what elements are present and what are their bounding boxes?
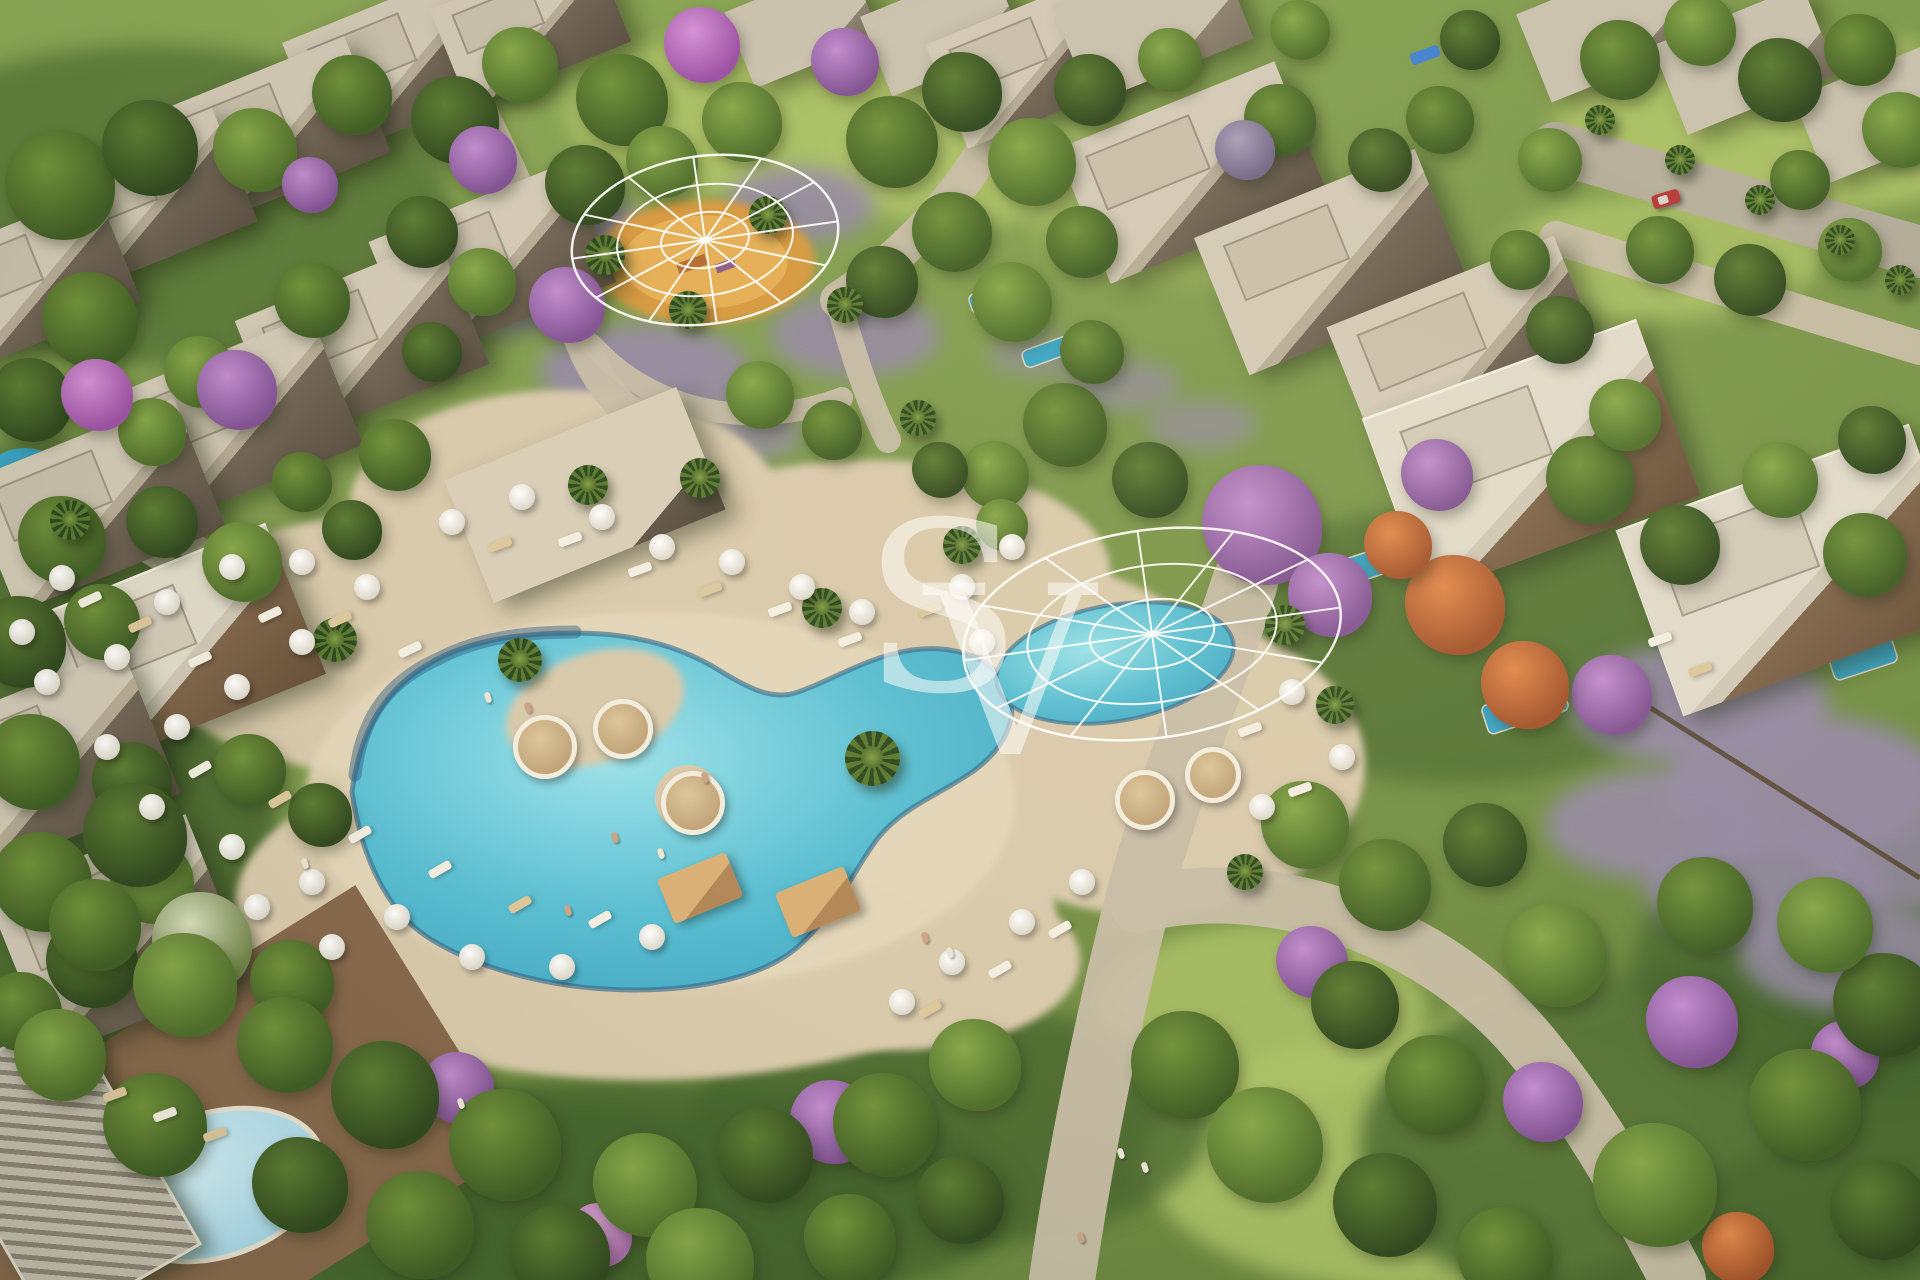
watermark-letter-v: V [925, 556, 1095, 791]
watermark: S V [0, 0, 1920, 1280]
aerial-render: S V [0, 0, 1920, 1280]
